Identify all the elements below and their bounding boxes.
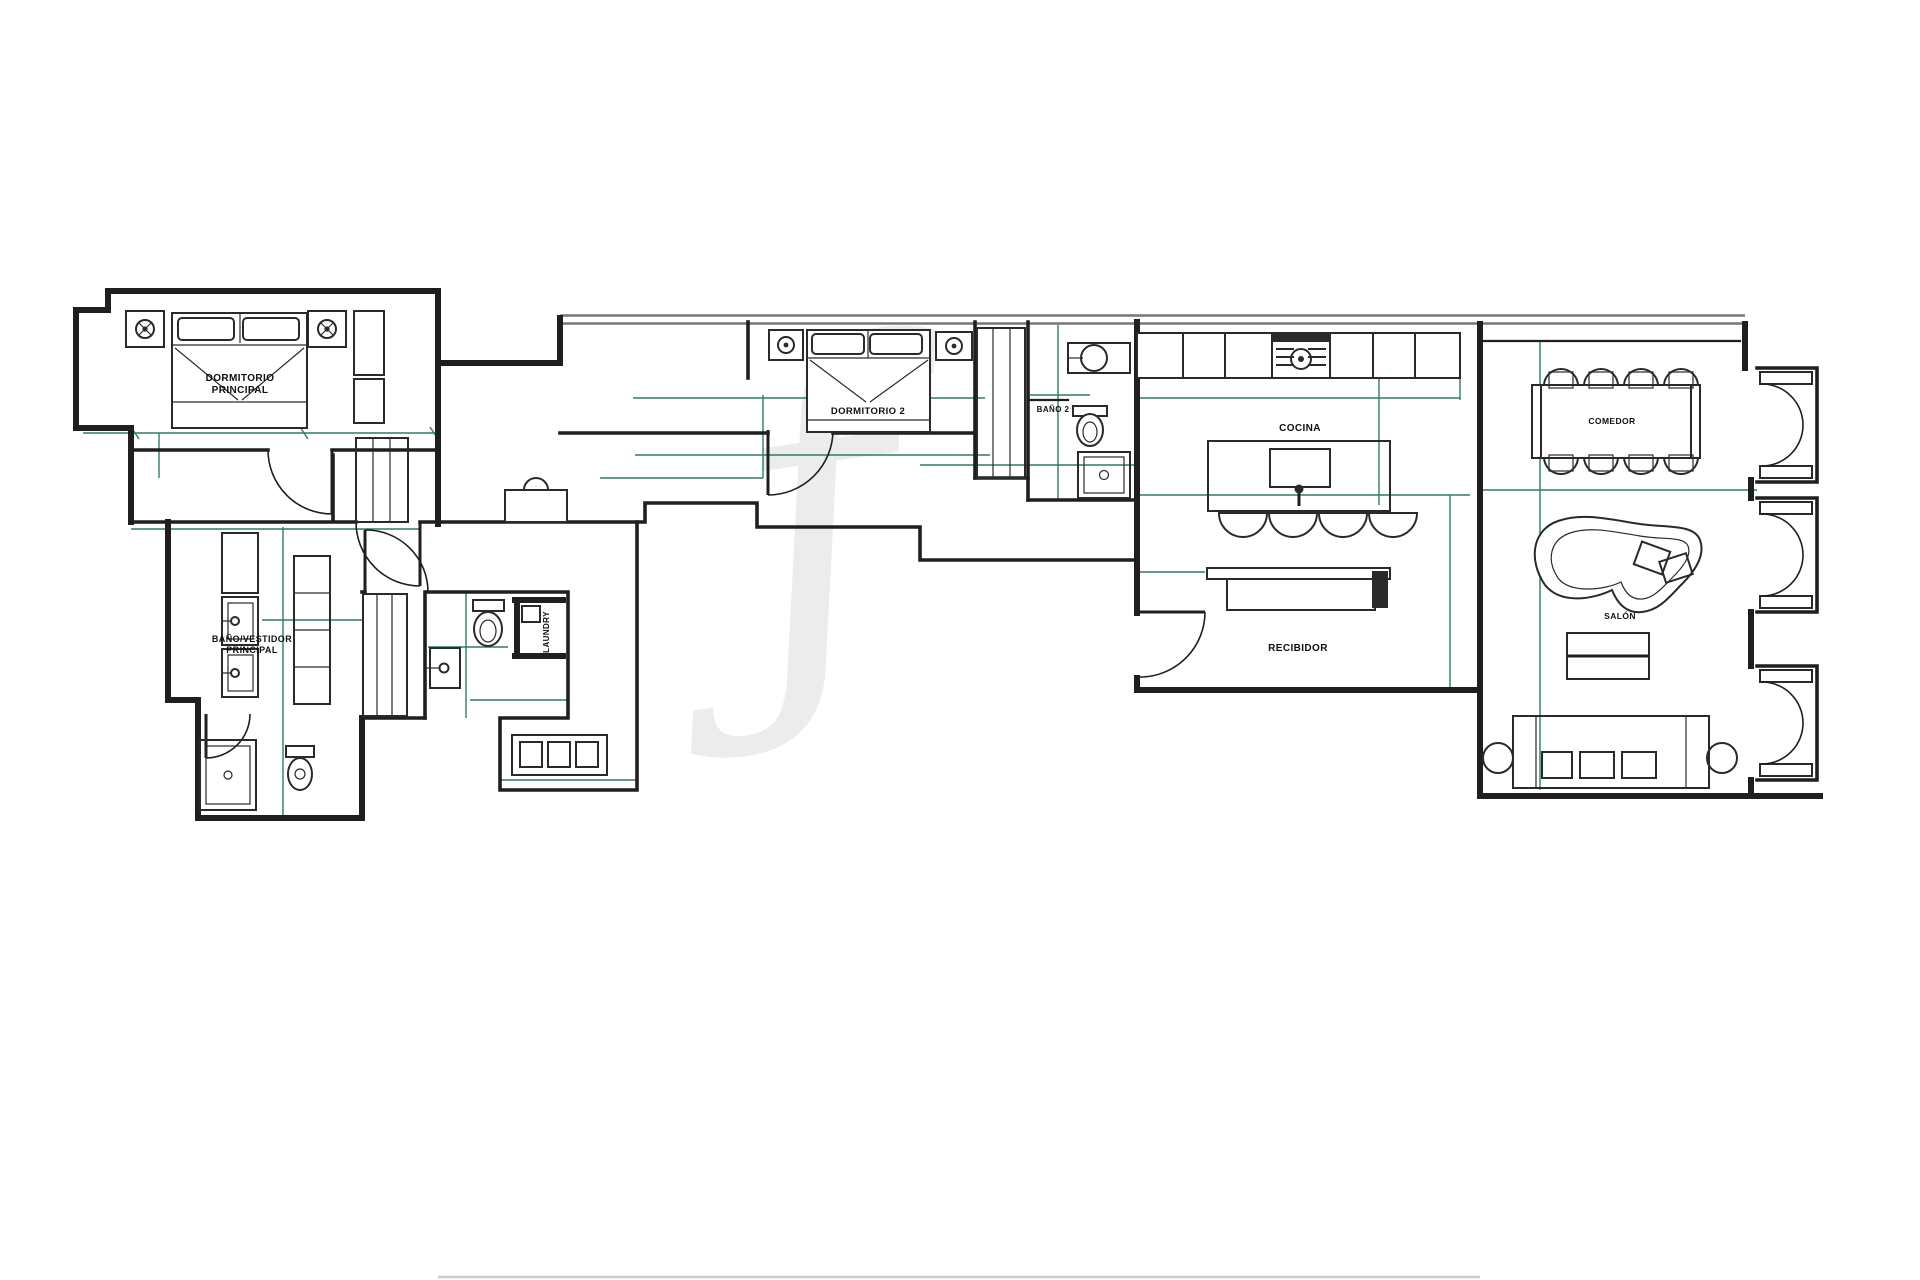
wardrobe-icon [354, 311, 384, 423]
console-icon [1207, 568, 1390, 610]
toilet-icon [473, 600, 504, 646]
desk-icon [505, 478, 567, 522]
french-window-icon [1757, 666, 1817, 780]
floor-plan-canvas: ƒ [0, 0, 1920, 1280]
room-label-salon: SALÓN [1604, 610, 1636, 621]
shower-icon [200, 740, 256, 810]
room-label-laundry: LAUNDRY [542, 611, 551, 653]
door-swing-icon [206, 714, 250, 758]
room-label-dormitorio-2: DORMITORIO 2 [831, 406, 905, 417]
cabinet-icon [222, 533, 258, 593]
nightstand-icon [769, 330, 803, 360]
door-swing-icon [1140, 612, 1205, 677]
sink-icon [1068, 343, 1130, 373]
room-bano-2 [1068, 343, 1130, 498]
room-label-cocina: COCINA [1279, 423, 1321, 434]
bench-icon [512, 735, 607, 775]
french-window-icon [1757, 498, 1817, 612]
wardrobe-icon [363, 594, 407, 716]
room-label-bano-vestidor: BAÑO/VESTIDOR [212, 634, 292, 644]
coffee-table-icon [1567, 633, 1649, 679]
door-swing-icon [268, 450, 332, 514]
french-window-icon [1757, 368, 1817, 482]
toilet-icon [1073, 406, 1107, 446]
sofa-icon [1513, 716, 1709, 788]
laundry-closet-icon [515, 600, 563, 656]
room-salon [1483, 517, 1737, 788]
side-table-icon [1483, 743, 1513, 773]
washer-icon [522, 606, 540, 622]
room-label-dormitorio-principal-2: PRINCIPAL [212, 385, 269, 396]
room-label-recibidor: RECIBIDOR [1268, 643, 1328, 654]
nightstand-icon [126, 311, 164, 347]
room-bano-vestidor [200, 533, 330, 810]
nightstand-icon [936, 332, 972, 360]
side-table-icon [1707, 743, 1737, 773]
sofa-icon [1535, 517, 1702, 612]
room-label-bano-2: BAÑO 2 [1037, 405, 1070, 414]
room-label-dormitorio-principal: DORMITORIO [206, 373, 275, 384]
island-icon [1208, 441, 1390, 511]
room-label-bano-vestidor-2: PRINCIPAL [226, 645, 278, 655]
stool-icon [1219, 513, 1417, 537]
toilet-icon [286, 746, 314, 790]
watermark-glyph: ƒ [624, 248, 1000, 786]
floor-plan-page: ƒ [0, 0, 1920, 1280]
bed-icon [172, 313, 307, 428]
room-dormitorio-principal [126, 311, 408, 522]
sink-icon [425, 648, 460, 688]
wardrobe-icon [294, 556, 330, 704]
room-label-comedor: COMEDOR [1588, 416, 1635, 426]
shower-icon [1078, 452, 1130, 498]
cabinet-row-icon [1137, 333, 1460, 378]
room-laundry-wc [363, 594, 563, 716]
nightstand-icon [308, 311, 346, 347]
sink-icon [222, 649, 258, 697]
room-cocina [1137, 333, 1460, 537]
room-recibidor [1207, 568, 1390, 610]
